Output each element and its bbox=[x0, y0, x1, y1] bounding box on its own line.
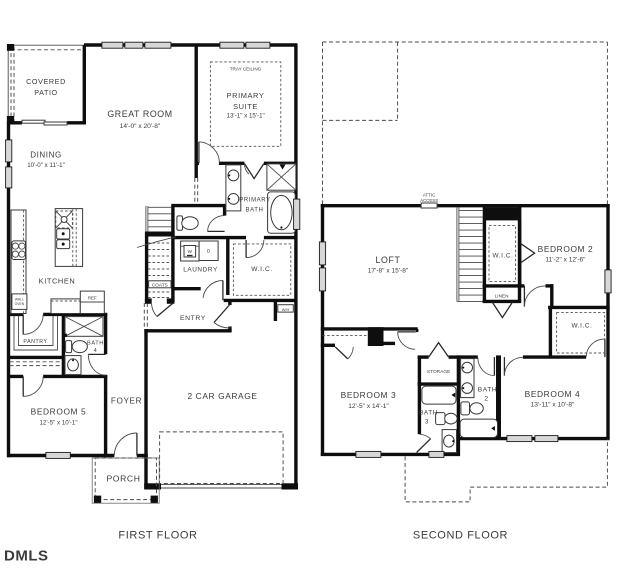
svg-text:2: 2 bbox=[484, 396, 488, 403]
svg-text:BEDROOM 4: BEDROOM 4 bbox=[525, 389, 581, 399]
svg-text:BEDROOM 3: BEDROOM 3 bbox=[341, 390, 397, 400]
svg-text:BATH: BATH bbox=[419, 410, 438, 417]
svg-text:PORCH: PORCH bbox=[106, 474, 140, 484]
svg-text:TRAY CEILING: TRAY CEILING bbox=[230, 67, 262, 72]
svg-text:REF: REF bbox=[88, 296, 97, 301]
svg-text:FOYER: FOYER bbox=[111, 397, 142, 406]
svg-text:12'-5" x 10'-1": 12'-5" x 10'-1" bbox=[39, 420, 77, 427]
svg-text:13'-11" x 10'-8": 13'-11" x 10'-8" bbox=[531, 402, 575, 409]
svg-text:FIRST FLOOR: FIRST FLOOR bbox=[118, 530, 197, 542]
svg-text:BEDROOM 2: BEDROOM 2 bbox=[538, 244, 594, 254]
svg-text:W.I.C.: W.I.C. bbox=[493, 253, 514, 260]
svg-text:LOFT: LOFT bbox=[376, 255, 401, 265]
svg-text:W/H: W/H bbox=[282, 307, 290, 312]
svg-text:2 CAR GARAGE: 2 CAR GARAGE bbox=[187, 391, 257, 401]
svg-text:STORAGE: STORAGE bbox=[427, 369, 450, 375]
svg-text:WALL: WALL bbox=[15, 297, 24, 301]
svg-text:4: 4 bbox=[94, 348, 98, 354]
svg-text:BATH: BATH bbox=[87, 341, 104, 347]
svg-text:LAUNDRY: LAUNDRY bbox=[183, 267, 218, 274]
svg-text:W.I.C.: W.I.C. bbox=[251, 266, 273, 273]
svg-text:ACCESS: ACCESS bbox=[420, 198, 438, 203]
svg-text:SUITE: SUITE bbox=[233, 102, 258, 111]
svg-text:11'-2" x 12'-6": 11'-2" x 12'-6" bbox=[545, 257, 586, 264]
svg-text:PRIMARY: PRIMARY bbox=[239, 198, 270, 204]
svg-text:PANTRY: PANTRY bbox=[23, 339, 47, 345]
svg-text:3: 3 bbox=[425, 419, 429, 426]
svg-text:10'-0" x 11'-1": 10'-0" x 11'-1" bbox=[27, 162, 65, 169]
svg-text:12'-5" x 14'-1": 12'-5" x 14'-1" bbox=[348, 403, 389, 410]
svg-text:GREAT ROOM: GREAT ROOM bbox=[107, 109, 172, 119]
svg-text:PATIO: PATIO bbox=[34, 88, 58, 97]
svg-text:ENTRY: ENTRY bbox=[180, 315, 206, 322]
svg-text:PRIMARY: PRIMARY bbox=[227, 91, 265, 100]
svg-text:KITCHEN: KITCHEN bbox=[39, 277, 76, 286]
svg-text:W: W bbox=[188, 249, 193, 254]
svg-text:W.I.C.: W.I.C. bbox=[572, 323, 593, 330]
svg-text:SECOND FLOOR: SECOND FLOOR bbox=[413, 530, 508, 542]
svg-text:DMLS: DMLS bbox=[4, 548, 49, 565]
svg-text:17'-8" x 15'-8": 17'-8" x 15'-8" bbox=[368, 268, 409, 275]
svg-text:OVEN: OVEN bbox=[15, 302, 25, 306]
svg-text:COATS: COATS bbox=[152, 282, 168, 287]
svg-text:COVERED: COVERED bbox=[26, 77, 66, 86]
svg-text:BATH: BATH bbox=[246, 208, 264, 214]
svg-text:BEDROOM 5: BEDROOM 5 bbox=[31, 407, 87, 417]
svg-text:13'-1" x 15'-1": 13'-1" x 15'-1" bbox=[227, 113, 265, 120]
svg-text:BATH: BATH bbox=[478, 387, 498, 394]
svg-text:LINEN: LINEN bbox=[495, 293, 509, 298]
svg-text:ATTIC: ATTIC bbox=[423, 193, 435, 198]
svg-text:14'-0" x 20'-8": 14'-0" x 20'-8" bbox=[120, 123, 161, 130]
svg-text:DINING: DINING bbox=[30, 151, 62, 160]
